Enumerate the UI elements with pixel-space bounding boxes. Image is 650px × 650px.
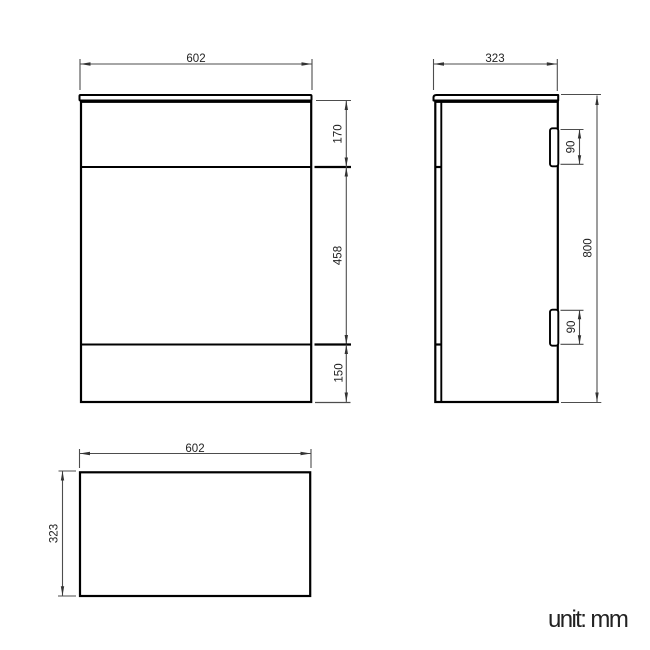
svg-text:170: 170	[333, 124, 345, 143]
svg-text:150: 150	[334, 363, 346, 382]
svg-text:90: 90	[566, 141, 578, 154]
svg-text:unit: mm: unit: mm	[548, 606, 628, 633]
svg-text:602: 602	[185, 443, 204, 455]
svg-text:323: 323	[485, 53, 504, 65]
svg-text:800: 800	[583, 238, 595, 257]
svg-text:602: 602	[186, 53, 205, 65]
svg-text:458: 458	[333, 246, 345, 265]
svg-text:90: 90	[566, 321, 578, 334]
svg-text:323: 323	[49, 524, 61, 543]
